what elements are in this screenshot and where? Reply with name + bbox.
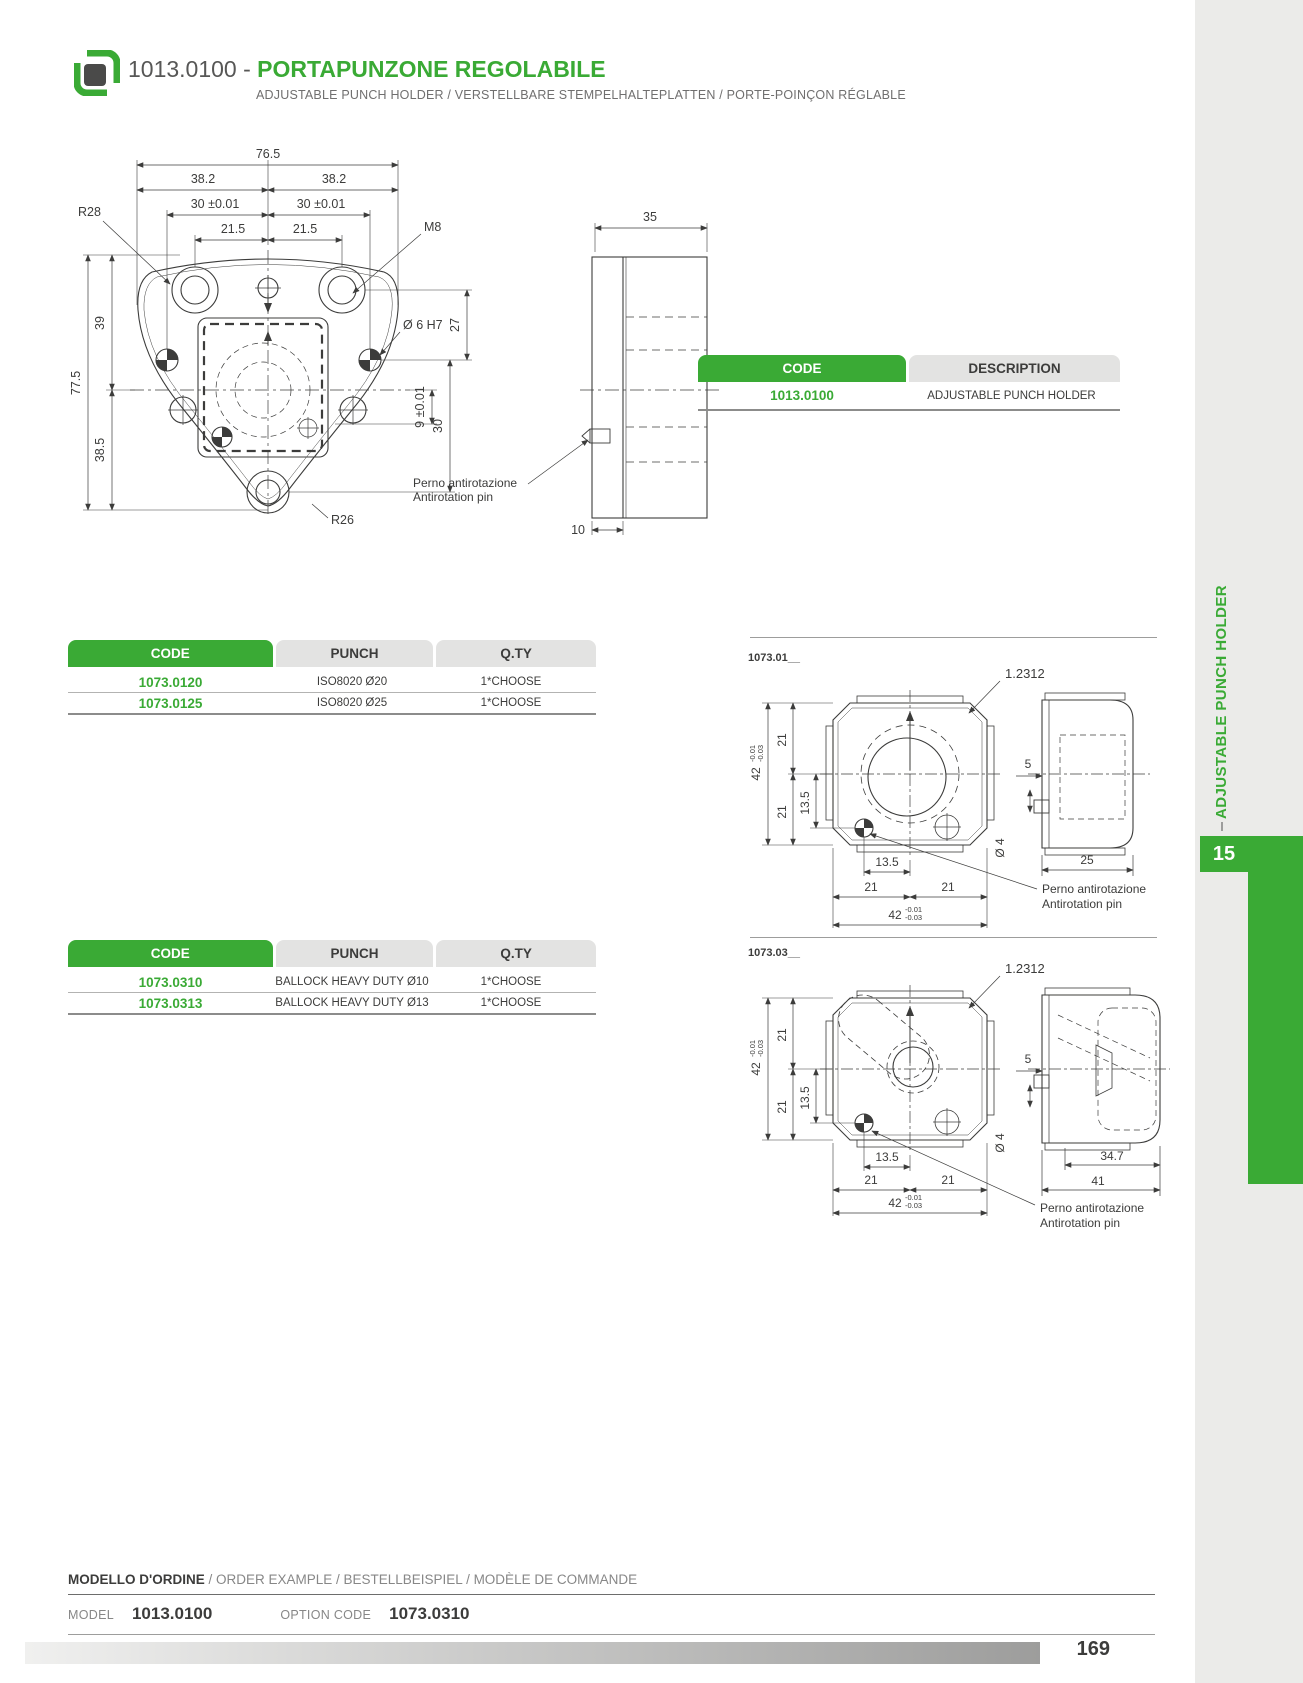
dim-10: 10 (571, 523, 585, 537)
code-column-header: CODE (698, 355, 906, 382)
dim-135-v: 13.5 (798, 1086, 812, 1110)
section-divider (750, 637, 1157, 638)
product-code: 1013.0100 (698, 388, 906, 403)
punch-type: BALLOCK HEAVY DUTY Ø10 (273, 976, 431, 988)
footer-divider (68, 1634, 1155, 1635)
main-technical-drawing: 76.5 38.2 38.2 30 ±0.01 30 ±0.01 21.5 21… (60, 130, 740, 560)
description-column-header: DESCRIPTION (909, 355, 1120, 382)
option-code: 1073.0310 (68, 975, 273, 990)
dim-21-right: 21 (941, 1173, 955, 1187)
dim-42-tol-lo: -0.03 (756, 745, 765, 762)
dim-215-r: 21.5 (293, 222, 317, 236)
punch-table-ballock: CODE PUNCH Q.TY 1073.0310 BALLOCK HEAVY … (68, 940, 596, 1015)
page-title: 1013.0100 - PORTAPUNZONE REGOLABILE (128, 56, 606, 83)
model-value: 1013.0100 (132, 1604, 212, 1624)
table-row: 1073.0310 BALLOCK HEAVY DUTY Ø10 1*CHOOS… (68, 972, 596, 993)
drawing-1073-01: 1073.01__ (695, 645, 1170, 935)
option-code: 1073.0125 (68, 696, 273, 711)
dim-35: 35 (643, 210, 657, 224)
dim-42-h-tol-lo: -0.03 (905, 1201, 922, 1210)
antirotation-note-it: Perno antirotazione (1040, 1201, 1144, 1215)
dim-42: 42 (749, 767, 763, 781)
antirotation-note-en: Antirotation pin (413, 490, 493, 504)
antirotation-note-it: Perno antirotazione (1042, 882, 1146, 896)
drawing-id: 1073.01__ (748, 652, 801, 664)
option-code: 1073.0120 (68, 675, 273, 690)
chapter-edge-band (1248, 836, 1303, 1184)
dim-385: 38.5 (93, 438, 107, 462)
label-r28: R28 (78, 205, 101, 219)
dim-21-top: 21 (775, 733, 789, 747)
code-column-header: CODE (68, 940, 273, 967)
dim-21-bottom: 21 (775, 805, 789, 819)
label-r26: R26 (331, 513, 354, 527)
option-code-label: OPTION CODE (280, 1608, 371, 1622)
section-divider (750, 937, 1157, 938)
model-label: MODEL (68, 1608, 114, 1622)
dim-25: 25 (1080, 853, 1094, 867)
dim-21-right: 21 (941, 880, 955, 894)
dim-21-left: 21 (864, 1173, 878, 1187)
material-label: 1.2312 (1005, 961, 1045, 976)
dim-dia4: Ø 4 (993, 838, 1007, 858)
punch-column-header: PUNCH (276, 940, 434, 967)
page-number: 169 (1040, 1638, 1110, 1661)
order-heading-primary: MODELLO D'ORDINE (68, 1572, 205, 1587)
punch-column-header: PUNCH (276, 640, 434, 667)
dim-347: 34.7 (1100, 1149, 1124, 1163)
table-row: 1073.0120 ISO8020 Ø20 1*CHOOSE (68, 672, 596, 693)
table-row: 1073.0125 ISO8020 Ø25 1*CHOOSE (68, 693, 596, 715)
catalog-page: ADJUSTABLE PUNCH HOLDER 15 1013.0100 - P… (0, 0, 1303, 1683)
option-code: 1073.0313 (68, 996, 273, 1011)
chapter-number-tab: 15 (1200, 836, 1248, 872)
dim-382-l: 38.2 (191, 172, 215, 186)
antirotation-note-it: Perno antirotazione (413, 476, 517, 490)
drawing-id: 1073.03__ (748, 947, 801, 959)
order-heading-translations: / ORDER EXAMPLE / BESTELLBEISPIEL / MODÈ… (205, 1572, 637, 1587)
dim-42-tol-lo: -0.03 (756, 1040, 765, 1057)
dim-30tol-r: 30 ±0.01 (297, 197, 346, 211)
label-m8: M8 (424, 220, 441, 234)
dim-775: 77.5 (69, 371, 83, 395)
dim-21-top: 21 (775, 1028, 789, 1042)
chapter-vertical-label: ADJUSTABLE PUNCH HOLDER (1213, 572, 1231, 832)
dim-41: 41 (1091, 1174, 1105, 1188)
quantity: 1*CHOOSE (431, 676, 591, 688)
dim-765: 76.5 (256, 147, 280, 161)
punch-holder-icon (74, 50, 120, 96)
punch-type: ISO8020 Ø20 (273, 676, 431, 688)
dim-42-h: 42 (888, 1196, 902, 1210)
model-code: 1013.0100 - (128, 56, 257, 82)
punch-type: BALLOCK HEAVY DUTY Ø13 (273, 997, 431, 1009)
dim-dia4: Ø 4 (993, 1133, 1007, 1153)
qty-column-header: Q.TY (436, 640, 596, 667)
punch-table-iso8020: CODE PUNCH Q.TY 1073.0120 ISO8020 Ø20 1*… (68, 640, 596, 715)
product-title: PORTAPUNZONE REGOLABILE (257, 56, 605, 82)
table-row: 1013.0100 ADJUSTABLE PUNCH HOLDER (698, 382, 1120, 411)
product-description: ADJUSTABLE PUNCH HOLDER (906, 390, 1117, 402)
antirotation-note-en: Antirotation pin (1040, 1216, 1120, 1230)
option-code-value: 1073.0310 (389, 1604, 469, 1624)
footer-divider (68, 1594, 1155, 1595)
dim-42-h: 42 (888, 908, 902, 922)
material-label: 1.2312 (1005, 666, 1045, 681)
dim-135-v: 13.5 (798, 791, 812, 815)
code-column-header: CODE (68, 640, 273, 667)
dim-9tol: 9 ±0.01 (413, 386, 427, 428)
dim-135-h: 13.5 (875, 855, 899, 869)
dim-21-left: 21 (864, 880, 878, 894)
dim-42: 42 (749, 1062, 763, 1076)
punch-type: ISO8020 Ø25 (273, 697, 431, 709)
chapter-label-tick (1221, 822, 1223, 831)
dim-27: 27 (448, 318, 462, 332)
table-row: 1073.0313 BALLOCK HEAVY DUTY Ø13 1*CHOOS… (68, 993, 596, 1015)
dim-5: 5 (1025, 757, 1032, 771)
antirotation-note-en: Antirotation pin (1042, 897, 1122, 911)
dim-21-bottom: 21 (775, 1100, 789, 1114)
drawing-1073-03: 1073.03__ (695, 940, 1170, 1230)
quantity: 1*CHOOSE (431, 697, 591, 709)
product-subtitle: ADJUSTABLE PUNCH HOLDER / VERSTELLBARE S… (256, 88, 906, 102)
order-example-row: MODEL 1013.0100 OPTION CODE 1073.0310 (68, 1604, 470, 1624)
code-description-table: CODE DESCRIPTION 1013.0100 ADJUSTABLE PU… (698, 355, 1120, 411)
dim-215-l: 21.5 (221, 222, 245, 236)
quantity: 1*CHOOSE (431, 997, 591, 1009)
order-example-heading: MODELLO D'ORDINE / ORDER EXAMPLE / BESTE… (68, 1572, 637, 1587)
dim-30tol-l: 30 ±0.01 (191, 197, 240, 211)
dim-39: 39 (93, 316, 107, 330)
quantity: 1*CHOOSE (431, 976, 591, 988)
dim-30v: 30 (431, 419, 445, 433)
qty-column-header: Q.TY (436, 940, 596, 967)
footer-bar (25, 1642, 1040, 1664)
dim-5: 5 (1025, 1052, 1032, 1066)
label-d6h7: Ø 6 H7 (403, 318, 443, 332)
dim-382-r: 38.2 (322, 172, 346, 186)
dim-135-h: 13.5 (875, 1150, 899, 1164)
dim-42-h-tol-lo: -0.03 (905, 913, 922, 922)
